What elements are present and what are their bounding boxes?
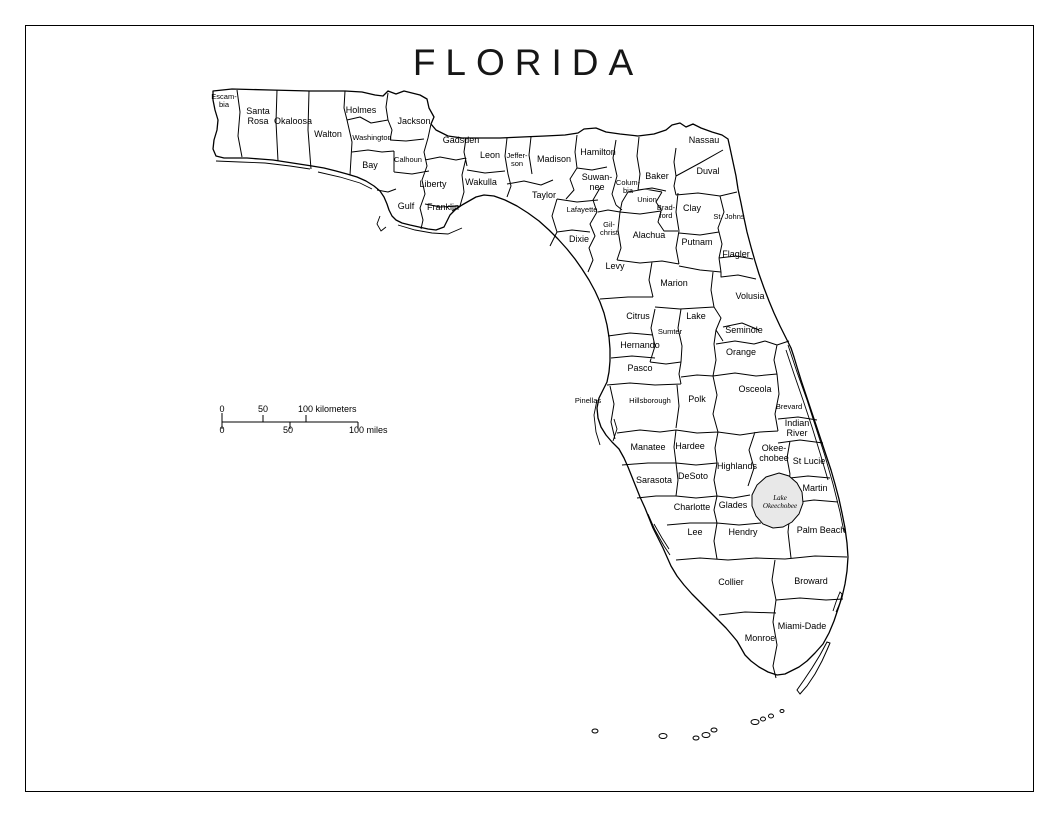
county-label-lee: Lee	[687, 528, 702, 538]
county-label-polk: Polk	[688, 395, 706, 405]
county-label-clay: Clay	[683, 204, 701, 214]
county-label-indian-river: Indian River	[785, 419, 810, 439]
county-label-duval: Duval	[696, 167, 719, 177]
county-label-escambia: Escam- bia	[211, 93, 236, 109]
county-label-holmes: Holmes	[346, 106, 377, 116]
county-label-orange: Orange	[726, 348, 756, 358]
county-label-jefferson: Jeffer- son	[506, 152, 527, 168]
county-label-osceola: Osceola	[738, 385, 771, 395]
scale-mi-50: 50	[283, 425, 293, 435]
county-label-dixie: Dixie	[569, 235, 589, 245]
county-label-wakulla: Wakulla	[465, 178, 497, 188]
county-label-desoto: DeSoto	[678, 472, 708, 482]
county-label-levy: Levy	[605, 262, 624, 272]
county-label-collier: Collier	[718, 578, 744, 588]
scale-km-0: 0	[219, 404, 224, 414]
county-label-bay: Bay	[362, 161, 378, 171]
county-label-madison: Madison	[537, 155, 571, 165]
county-label-leon: Leon	[480, 151, 500, 161]
county-label-okaloosa: Okaloosa	[274, 117, 312, 127]
scale-km-50: 50	[258, 404, 268, 414]
county-label-flagler: Flagler	[722, 250, 750, 260]
county-label-gulf: Gulf	[398, 202, 415, 212]
county-label-nassau: Nassau	[689, 136, 720, 146]
county-label-st-johns: St. Johns	[713, 213, 744, 221]
county-label-martin: Martin	[802, 484, 827, 494]
lake-label-line1: Lake	[763, 494, 797, 502]
county-label-putnam: Putnam	[681, 238, 712, 248]
county-label-citrus: Citrus	[626, 312, 650, 322]
county-label-pinellas: Pinellas	[575, 397, 601, 405]
county-label-st-lucie: St Lucie	[793, 457, 826, 467]
county-label-miami-dade: Miami-Dade	[778, 622, 827, 632]
county-label-calhoun: Calhoun	[394, 156, 422, 164]
county-label-gadsden: Gadsden	[443, 136, 480, 146]
lake-label-line2: Okeechobee	[763, 502, 797, 510]
county-label-volusia: Volusia	[735, 292, 764, 302]
lake-okeechobee-label: Lake Okeechobee	[763, 494, 797, 510]
county-label-lake: Lake	[686, 312, 706, 322]
county-label-baker: Baker	[645, 172, 669, 182]
county-label-santa-rosa: Santa Rosa	[246, 107, 270, 127]
county-label-franklin: Franklin	[427, 203, 459, 213]
county-label-pasco: Pasco	[627, 364, 652, 374]
county-label-glades: Glades	[719, 501, 748, 511]
scale-mi-100: 100 miles	[349, 425, 388, 435]
county-label-highlands: Highlands	[717, 462, 757, 472]
county-label-sarasota: Sarasota	[636, 476, 672, 486]
county-label-suwannee: Suwan- nee	[582, 173, 613, 193]
county-label-marion: Marion	[660, 279, 688, 289]
florida-map	[0, 0, 1056, 815]
county-label-okeechobee: Okee- chobee	[759, 444, 789, 464]
county-label-liberty: Liberty	[419, 180, 446, 190]
county-label-taylor: Taylor	[532, 191, 556, 201]
county-label-hardee: Hardee	[675, 442, 705, 452]
county-label-walton: Walton	[314, 130, 342, 140]
county-label-hendry: Hendry	[728, 528, 757, 538]
county-label-hamilton: Hamilton	[580, 148, 616, 158]
scale-mi-0: 0	[219, 425, 224, 435]
county-label-columbia: Colum- bia	[616, 179, 640, 195]
county-label-union: Union	[637, 196, 657, 204]
county-label-alachua: Alachua	[633, 231, 666, 241]
county-label-hernando: Hernando	[620, 341, 660, 351]
state-outline	[213, 89, 848, 675]
county-label-charlotte: Charlotte	[674, 503, 711, 513]
county-label-gilchrist: Gil- christ	[600, 221, 618, 237]
scale-km-100: 100 kilometers	[298, 404, 357, 414]
county-label-sumter: Sumter	[658, 328, 682, 336]
county-label-brevard: Brevard	[776, 403, 802, 411]
county-label-washington: Washington	[352, 134, 391, 142]
county-label-bradford: Brad- ford	[657, 204, 675, 220]
county-label-jackson: Jackson	[397, 117, 430, 127]
county-label-hillsborough: Hillsborough	[629, 397, 671, 405]
county-label-broward: Broward	[794, 577, 828, 587]
county-label-lafayette: Lafayette	[567, 206, 598, 214]
county-label-monroe: Monroe	[745, 634, 776, 644]
county-label-manatee: Manatee	[630, 443, 665, 453]
page: FLORIDA	[0, 0, 1056, 815]
county-label-palm-beach: Palm Beach	[797, 526, 846, 536]
county-label-seminole: Seminole	[725, 326, 763, 336]
